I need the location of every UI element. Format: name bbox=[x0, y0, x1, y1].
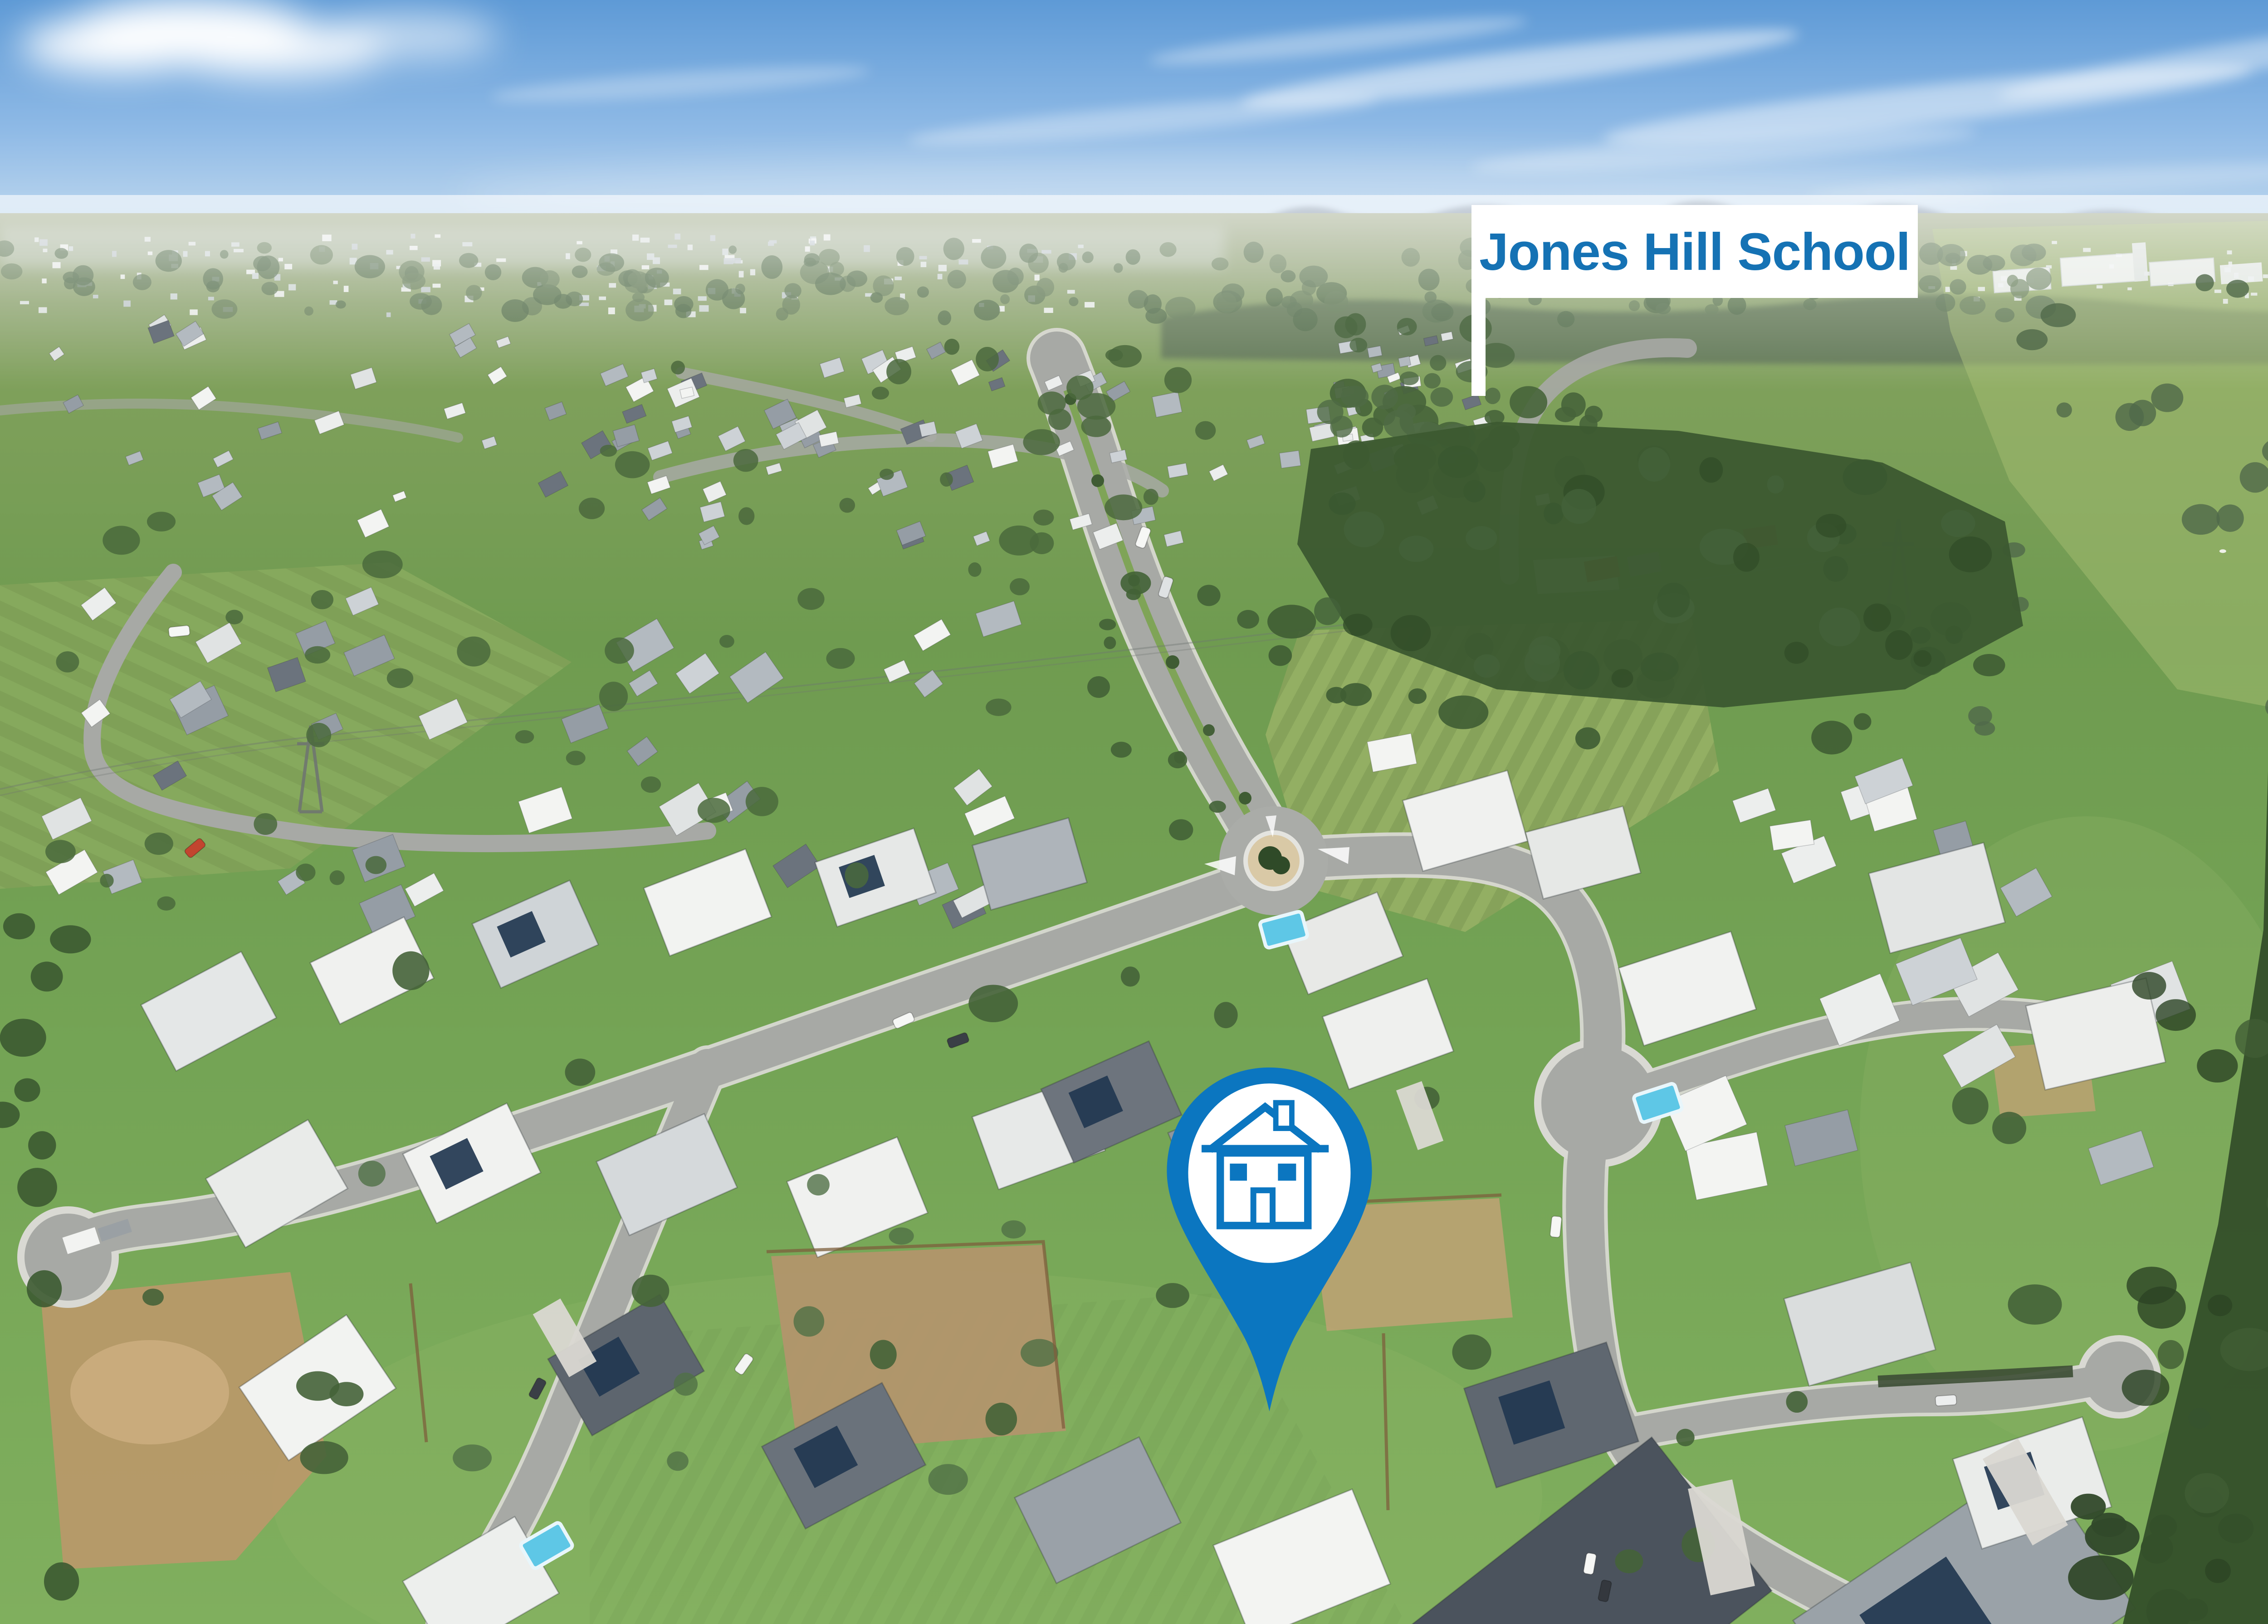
aerial-scene bbox=[0, 0, 2268, 1624]
aerial-photo: Jones Hill School bbox=[0, 0, 2268, 1624]
window-right bbox=[1278, 1164, 1296, 1181]
school-label: Jones Hill School bbox=[1471, 205, 1918, 298]
school-label-leader-line bbox=[1471, 290, 1486, 396]
door bbox=[1253, 1190, 1272, 1226]
property-pin bbox=[1163, 1063, 1376, 1416]
window-left bbox=[1230, 1164, 1247, 1181]
chimney bbox=[1276, 1103, 1292, 1129]
